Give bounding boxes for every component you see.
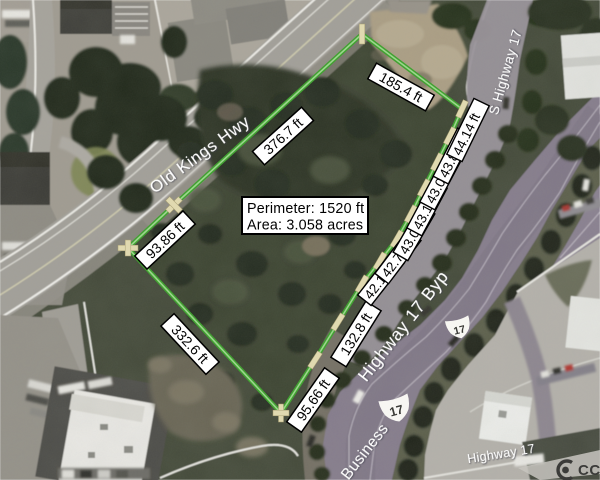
svg-text:CCM: CCM bbox=[578, 462, 600, 479]
svg-text:Perimeter: 1520 ft: Perimeter: 1520 ft bbox=[247, 201, 364, 217]
svg-text:Area: 3.058 acres: Area: 3.058 acres bbox=[247, 218, 363, 234]
